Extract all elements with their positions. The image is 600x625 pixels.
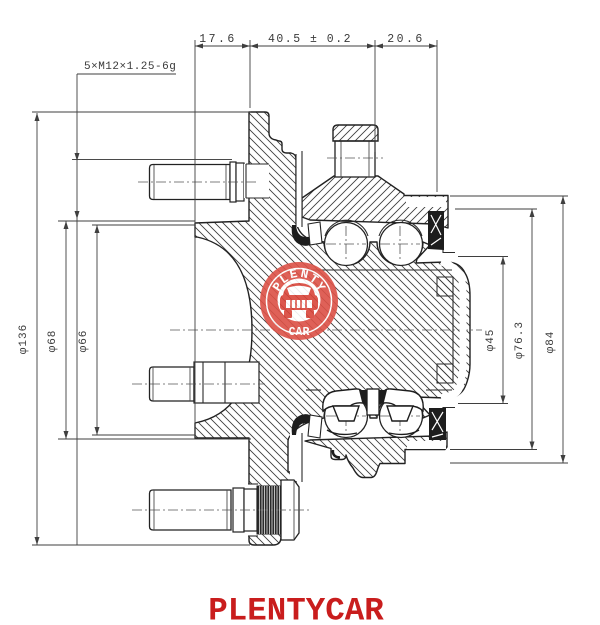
svg-text:40.5 ± 0.2: 40.5 ± 0.2	[268, 33, 352, 46]
svg-text:φ136: φ136	[18, 324, 30, 354]
svg-text:20.6: 20.6	[387, 33, 425, 46]
svg-text:φ84: φ84	[545, 331, 557, 354]
svg-text:φ45: φ45	[485, 329, 497, 352]
svg-text:CAR: CAR	[289, 326, 310, 339]
svg-text:φ76.3: φ76.3	[514, 321, 526, 359]
svg-text:PLENTYCAR: PLENTYCAR	[208, 593, 384, 625]
svg-text:17.6: 17.6	[199, 33, 237, 46]
svg-text:φ68: φ68	[47, 330, 59, 353]
svg-text:φ66: φ66	[78, 330, 90, 353]
svg-text:5×M12×1.25-6g: 5×M12×1.25-6g	[84, 61, 176, 73]
